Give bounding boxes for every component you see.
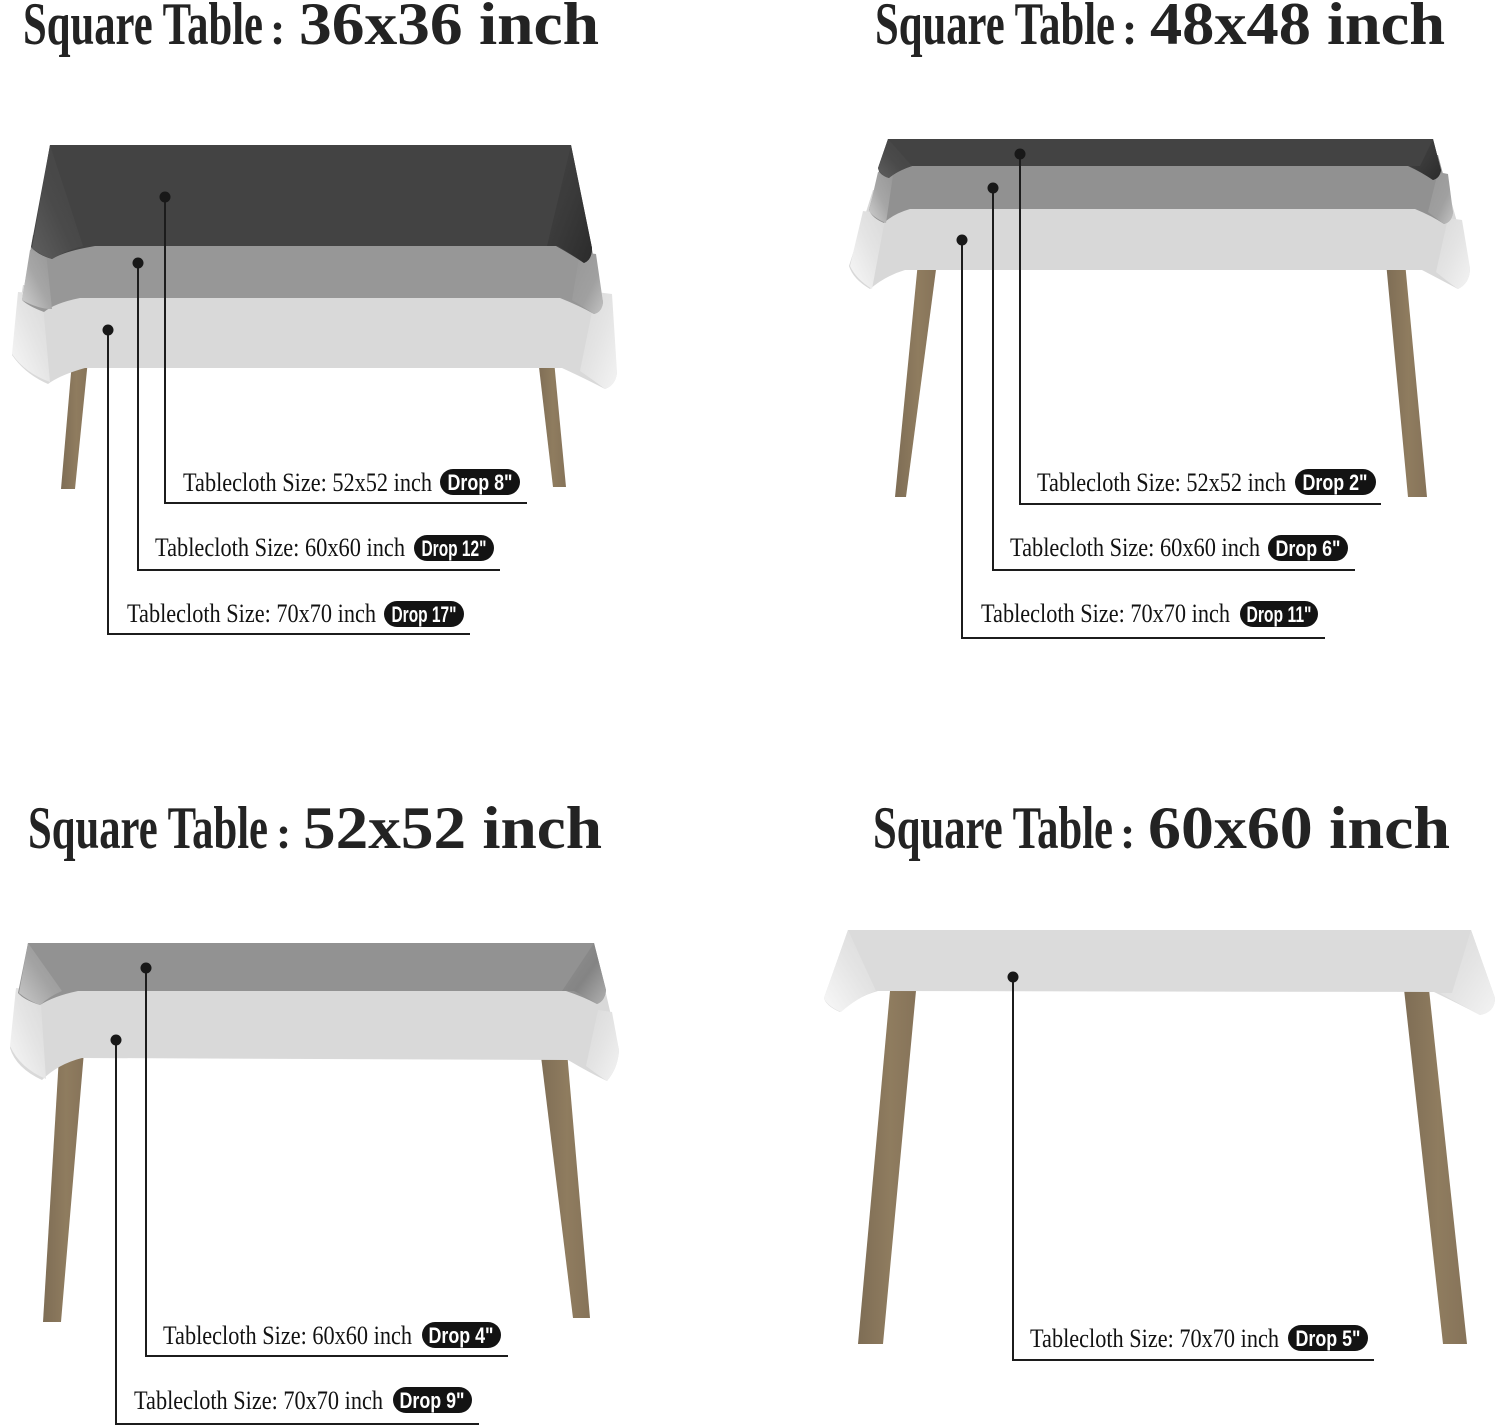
svg-text:Tablecloth Size: 60x60 inch: Tablecloth Size: 60x60 inch — [1010, 533, 1260, 562]
svg-text:Drop 11": Drop 11" — [1247, 602, 1312, 627]
svg-text:Square Table:60x60 inch: Square Table:60x60 inch — [873, 795, 1450, 861]
svg-text:Square Table:36x36 inch: Square Table:36x36 inch — [23, 0, 599, 57]
svg-text:Tablecloth Size: 60x60 inch: Tablecloth Size: 60x60 inch — [163, 1321, 412, 1350]
svg-text:Tablecloth Size: 52x52 inch: Tablecloth Size: 52x52 inch — [1037, 468, 1286, 497]
svg-text:Tablecloth Size: 70x70 inch: Tablecloth Size: 70x70 inch — [127, 599, 376, 628]
svg-text:Tablecloth Size: 70x70 inch: Tablecloth Size: 70x70 inch — [981, 599, 1230, 628]
svg-text:Drop 4": Drop 4" — [429, 1323, 494, 1348]
svg-text:Tablecloth Size: 60x60 inch: Tablecloth Size: 60x60 inch — [155, 533, 405, 562]
svg-text:Drop 12": Drop 12" — [422, 536, 487, 561]
svg-text:Square Table:52x52 inch: Square Table:52x52 inch — [28, 795, 602, 861]
svg-text:Tablecloth Size: 70x70 inch: Tablecloth Size: 70x70 inch — [134, 1386, 383, 1415]
svg-text:Drop 2": Drop 2" — [1303, 470, 1368, 495]
svg-text:Tablecloth Size: 70x70 inch: Tablecloth Size: 70x70 inch — [1030, 1324, 1279, 1353]
svg-text:Tablecloth Size: 52x52 inch: Tablecloth Size: 52x52 inch — [183, 468, 432, 497]
svg-text:Drop 6": Drop 6" — [1276, 536, 1341, 561]
svg-text:Drop 9": Drop 9" — [400, 1388, 465, 1413]
svg-text:Square Table:48x48 inch: Square Table:48x48 inch — [875, 0, 1445, 57]
svg-text:Drop 8": Drop 8" — [448, 470, 513, 495]
svg-text:Drop 17": Drop 17" — [392, 602, 457, 627]
svg-text:Drop 5": Drop 5" — [1296, 1326, 1361, 1351]
